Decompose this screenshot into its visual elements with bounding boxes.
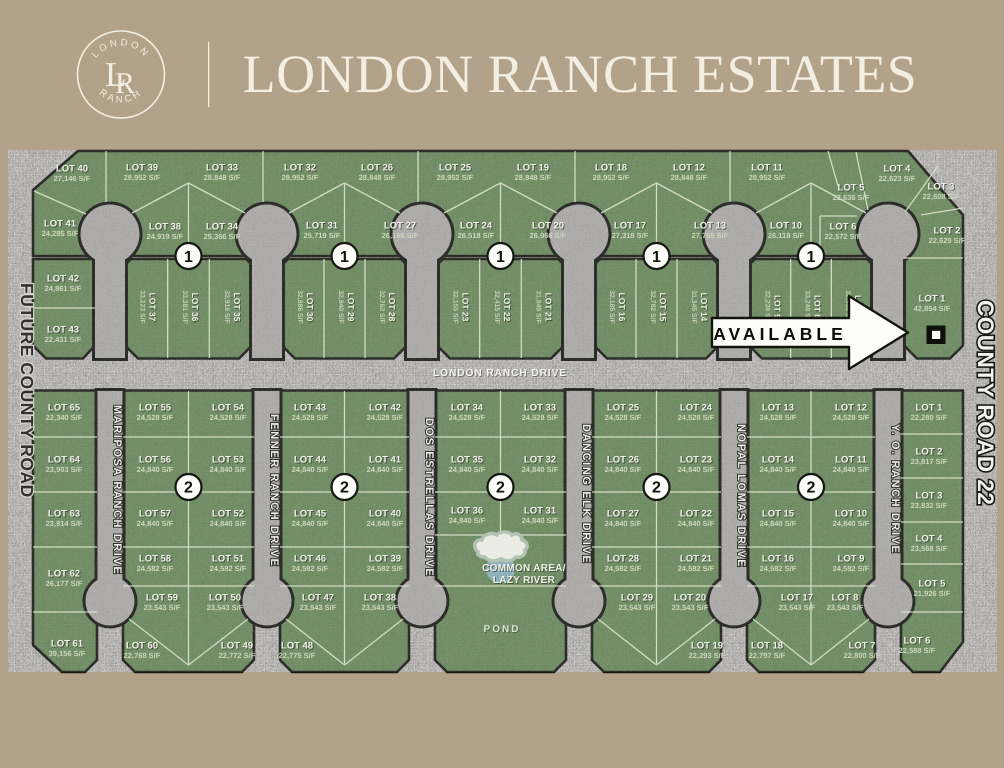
- svg-text:LOT 25: LOT 25: [607, 403, 640, 414]
- svg-text:32,840 S/F: 32,840 S/F: [337, 290, 344, 323]
- svg-text:LOT 11: LOT 11: [835, 455, 867, 466]
- svg-text:LOT 5: LOT 5: [838, 183, 866, 194]
- svg-text:22,800 S/F: 22,800 S/F: [844, 651, 881, 660]
- svg-text:23,817 S/F: 23,817 S/F: [911, 457, 948, 466]
- svg-text:LOT 8: LOT 8: [813, 295, 823, 319]
- svg-text:22,768 S/F: 22,768 S/F: [124, 651, 161, 660]
- svg-text:LOT 26: LOT 26: [361, 163, 393, 174]
- svg-text:LOT 65: LOT 65: [48, 403, 81, 414]
- svg-text:24,582 S/F: 24,582 S/F: [137, 564, 174, 573]
- svg-text:24,528 S/F: 24,528 S/F: [522, 413, 559, 422]
- svg-text:22,775 S/F: 22,775 S/F: [279, 651, 316, 660]
- svg-text:LOT 13: LOT 13: [694, 221, 726, 232]
- svg-text:24,840 S/F: 24,840 S/F: [292, 465, 329, 474]
- svg-text:LOT 26: LOT 26: [607, 455, 639, 466]
- svg-text:MARIPOSA RANCH DRIVE: MARIPOSA RANCH DRIVE: [111, 405, 123, 575]
- svg-text:28,848 S/F: 28,848 S/F: [671, 173, 708, 182]
- svg-text:23,543 S/F: 23,543 S/F: [827, 603, 864, 612]
- svg-text:2: 2: [184, 480, 193, 497]
- svg-text:DOS ESTRELLAS DRIVE: DOS ESTRELLAS DRIVE: [423, 418, 435, 577]
- svg-text:23,543 S/F: 23,543 S/F: [207, 603, 244, 612]
- svg-text:24,840 S/F: 24,840 S/F: [760, 519, 797, 528]
- svg-text:23,543 S/F: 23,543 S/F: [672, 603, 709, 612]
- svg-text:LOT 59: LOT 59: [146, 593, 178, 604]
- svg-text:24,840 S/F: 24,840 S/F: [833, 519, 870, 528]
- svg-text:1: 1: [807, 249, 816, 266]
- svg-text:LOT 17: LOT 17: [781, 593, 813, 604]
- svg-text:24,528 S/F: 24,528 S/F: [605, 413, 642, 422]
- svg-text:FENNER RANCH DRIVE: FENNER RANCH DRIVE: [268, 414, 280, 567]
- svg-text:24,840 S/F: 24,840 S/F: [522, 465, 559, 474]
- svg-text:LOT 56: LOT 56: [139, 455, 171, 466]
- svg-text:LOT 54: LOT 54: [212, 403, 245, 414]
- svg-text:LOT 60: LOT 60: [126, 641, 158, 652]
- svg-text:22,608 S/F: 22,608 S/F: [923, 192, 960, 201]
- svg-text:LOT 6: LOT 6: [830, 222, 857, 233]
- svg-text:FUTURE COUNTY ROAD: FUTURE COUNTY ROAD: [17, 283, 37, 498]
- svg-text:LOT 28: LOT 28: [607, 554, 639, 565]
- svg-text:LOT 14: LOT 14: [762, 455, 795, 466]
- svg-text:23,543 S/F: 23,543 S/F: [362, 603, 399, 612]
- svg-text:LOT 53: LOT 53: [212, 455, 244, 466]
- svg-text:28,848 S/F: 28,848 S/F: [359, 173, 396, 182]
- svg-text:31,345 S/F: 31,345 S/F: [690, 290, 697, 323]
- svg-text:24,861 S/F: 24,861 S/F: [45, 284, 82, 293]
- svg-text:LONDON RANCH ESTATES: LONDON RANCH ESTATES: [243, 44, 918, 104]
- svg-text:LOT 30: LOT 30: [305, 293, 315, 322]
- svg-text:28,952 S/F: 28,952 S/F: [124, 173, 161, 182]
- svg-text:31,849 S/F: 31,849 S/F: [535, 290, 542, 323]
- svg-text:25,366 S/F: 25,366 S/F: [204, 232, 241, 241]
- svg-text:1: 1: [652, 249, 661, 266]
- svg-text:LOT 29: LOT 29: [621, 593, 653, 604]
- svg-text:28,848 S/F: 28,848 S/F: [204, 173, 241, 182]
- svg-text:LOT 13: LOT 13: [762, 403, 794, 414]
- svg-text:LOT 6: LOT 6: [904, 636, 931, 647]
- svg-text:27,318 S/F: 27,318 S/F: [612, 231, 649, 240]
- svg-text:28,952 S/F: 28,952 S/F: [437, 173, 474, 182]
- svg-text:LOT 27: LOT 27: [384, 221, 416, 232]
- svg-text:24,528 S/F: 24,528 S/F: [210, 413, 247, 422]
- svg-text:LOT 10: LOT 10: [835, 509, 867, 520]
- svg-text:2: 2: [807, 480, 816, 497]
- svg-text:22,340 S/F: 22,340 S/F: [46, 413, 83, 422]
- svg-text:26,118 S/F: 26,118 S/F: [768, 231, 805, 240]
- svg-text:LOT 21: LOT 21: [680, 554, 713, 565]
- svg-text:LOT 58: LOT 58: [139, 554, 171, 565]
- svg-text:23,543 S/F: 23,543 S/F: [779, 603, 816, 612]
- svg-text:23,903 S/F: 23,903 S/F: [46, 465, 83, 474]
- svg-text:24,840 S/F: 24,840 S/F: [449, 516, 486, 525]
- svg-text:32,886 S/F: 32,886 S/F: [296, 290, 303, 323]
- svg-text:LOT 23: LOT 23: [680, 455, 712, 466]
- svg-text:LOT 12: LOT 12: [835, 403, 867, 414]
- svg-text:LOT 1: LOT 1: [916, 403, 944, 414]
- svg-text:DANCING ELK DRIVE: DANCING ELK DRIVE: [580, 424, 592, 564]
- svg-text:LOT 61: LOT 61: [51, 639, 84, 650]
- svg-text:LOT 17: LOT 17: [614, 221, 646, 232]
- svg-text:24,840 S/F: 24,840 S/F: [137, 465, 174, 474]
- svg-text:POND: POND: [484, 624, 521, 635]
- svg-text:LOT 35: LOT 35: [451, 455, 484, 466]
- svg-text:LOT 31: LOT 31: [524, 506, 557, 517]
- svg-text:32,782 S/F: 32,782 S/F: [649, 290, 656, 323]
- svg-text:2: 2: [496, 480, 505, 497]
- svg-text:LOT 62: LOT 62: [48, 569, 80, 580]
- svg-text:LOT 19: LOT 19: [517, 163, 549, 174]
- svg-text:1: 1: [184, 249, 193, 266]
- svg-text:LOT 39: LOT 39: [369, 554, 401, 565]
- svg-text:1: 1: [496, 249, 505, 266]
- svg-text:26,177 S/F: 26,177 S/F: [46, 579, 83, 588]
- svg-text:LOT 29: LOT 29: [346, 293, 356, 322]
- svg-text:LOT 42: LOT 42: [47, 274, 79, 285]
- svg-text:42,854 S/F: 42,854 S/F: [914, 304, 951, 313]
- svg-text:LOT 40: LOT 40: [369, 509, 401, 520]
- svg-text:LOT 36: LOT 36: [451, 506, 483, 517]
- svg-text:26,966 S/F: 26,966 S/F: [530, 231, 567, 240]
- svg-text:LOT 40: LOT 40: [56, 164, 88, 175]
- svg-text:Y. O. RANCH DRIVE: Y. O. RANCH DRIVE: [889, 424, 901, 555]
- svg-text:LOT 39: LOT 39: [126, 163, 158, 174]
- svg-text:2: 2: [340, 480, 349, 497]
- svg-text:24,840 S/F: 24,840 S/F: [678, 519, 715, 528]
- svg-text:LOT 28: LOT 28: [387, 293, 397, 322]
- svg-text:LOT 50: LOT 50: [209, 593, 241, 604]
- svg-text:LOT 16: LOT 16: [617, 293, 627, 322]
- svg-text:22,431 S/F: 22,431 S/F: [45, 335, 82, 344]
- svg-text:LOT 34: LOT 34: [451, 403, 484, 414]
- svg-text:LOT 9: LOT 9: [773, 295, 783, 319]
- svg-text:R: R: [115, 67, 135, 100]
- svg-text:LOT 64: LOT 64: [48, 455, 81, 466]
- svg-text:LOT 3: LOT 3: [916, 491, 943, 502]
- svg-text:24,582 S/F: 24,582 S/F: [760, 564, 797, 573]
- svg-text:32,762 S/F: 32,762 S/F: [378, 290, 385, 323]
- svg-text:LOT 11: LOT 11: [751, 163, 783, 174]
- svg-text:32,155 S/F: 32,155 S/F: [452, 290, 459, 323]
- svg-text:LOT 3: LOT 3: [928, 182, 955, 193]
- svg-text:24,840 S/F: 24,840 S/F: [605, 519, 642, 528]
- svg-text:22,588 S/F: 22,588 S/F: [899, 646, 936, 655]
- svg-text:NOPAL LOMAS DRIVE: NOPAL LOMAS DRIVE: [735, 424, 747, 568]
- svg-text:LOT 49: LOT 49: [221, 641, 253, 652]
- svg-text:24,919 S/F: 24,919 S/F: [147, 232, 184, 241]
- svg-text:24,528 S/F: 24,528 S/F: [678, 413, 715, 422]
- svg-text:2: 2: [652, 480, 661, 497]
- svg-text:24,840 S/F: 24,840 S/F: [449, 465, 486, 474]
- svg-text:22,280 S/F: 22,280 S/F: [911, 413, 948, 422]
- svg-text:LOT 18: LOT 18: [751, 641, 783, 652]
- svg-text:LOT 20: LOT 20: [674, 593, 706, 604]
- svg-text:AVAILABLE: AVAILABLE: [713, 324, 847, 344]
- svg-text:24,582 S/F: 24,582 S/F: [833, 564, 870, 573]
- svg-text:LOT 38: LOT 38: [149, 222, 181, 233]
- svg-text:24,528 S/F: 24,528 S/F: [367, 413, 404, 422]
- svg-text:COMMON AREA/: COMMON AREA/: [482, 563, 566, 574]
- svg-text:28,952 S/F: 28,952 S/F: [593, 173, 630, 182]
- svg-text:27,765 S/F: 27,765 S/F: [692, 231, 729, 240]
- svg-text:22,293 S/F: 22,293 S/F: [689, 651, 726, 660]
- svg-text:LOT 27: LOT 27: [607, 509, 639, 520]
- svg-text:24,840 S/F: 24,840 S/F: [367, 465, 404, 474]
- svg-text:LOT 7: LOT 7: [849, 641, 876, 652]
- svg-text:24,528 S/F: 24,528 S/F: [449, 413, 486, 422]
- svg-text:LOT 22: LOT 22: [502, 293, 512, 322]
- svg-text:24,582 S/F: 24,582 S/F: [292, 564, 329, 573]
- svg-text:24,528 S/F: 24,528 S/F: [760, 413, 797, 422]
- svg-text:LOT 51: LOT 51: [212, 554, 245, 565]
- svg-text:24,840 S/F: 24,840 S/F: [210, 519, 247, 528]
- svg-text:26,166 S/F: 26,166 S/F: [382, 231, 419, 240]
- svg-text:22,636 S/F: 22,636 S/F: [833, 193, 870, 202]
- svg-text:24,285 S/F: 24,285 S/F: [42, 229, 79, 238]
- svg-text:39,156 S/F: 39,156 S/F: [49, 649, 86, 658]
- svg-text:33,223 S/F: 33,223 S/F: [139, 290, 146, 323]
- svg-text:24,840 S/F: 24,840 S/F: [292, 519, 329, 528]
- svg-text:22,629 S/F: 22,629 S/F: [929, 236, 966, 245]
- svg-text:24,840 S/F: 24,840 S/F: [833, 465, 870, 474]
- svg-text:LOT 4: LOT 4: [884, 164, 912, 175]
- svg-text:27,146 S/F: 27,146 S/F: [54, 174, 91, 183]
- svg-text:25,719 S/F: 25,719 S/F: [304, 231, 341, 240]
- svg-text:1: 1: [340, 249, 349, 266]
- svg-text:LOT 47: LOT 47: [302, 593, 334, 604]
- svg-text:LOT 24: LOT 24: [680, 403, 713, 414]
- svg-text:22,623 S/F: 22,623 S/F: [879, 174, 916, 183]
- svg-text:23,543 S/F: 23,543 S/F: [619, 603, 656, 612]
- svg-text:24,582 S/F: 24,582 S/F: [367, 564, 404, 573]
- svg-text:22,772 S/F: 22,772 S/F: [219, 651, 256, 660]
- svg-text:LOT 20: LOT 20: [532, 221, 564, 232]
- svg-text:24,840 S/F: 24,840 S/F: [760, 465, 797, 474]
- svg-text:22,572 S/F: 22,572 S/F: [825, 232, 862, 241]
- svg-text:LOT 57: LOT 57: [139, 509, 171, 520]
- svg-text:24,840 S/F: 24,840 S/F: [367, 519, 404, 528]
- svg-text:LOT 10: LOT 10: [770, 221, 802, 232]
- svg-text:23,543 S/F: 23,543 S/F: [300, 603, 337, 612]
- svg-text:24,840 S/F: 24,840 S/F: [605, 465, 642, 474]
- svg-text:23,914 S/F: 23,914 S/F: [46, 519, 83, 528]
- svg-text:23,832 S/F: 23,832 S/F: [911, 501, 948, 510]
- svg-text:LOT 2: LOT 2: [934, 226, 961, 237]
- svg-text:LOT 19: LOT 19: [691, 641, 723, 652]
- svg-text:22,797 S/F: 22,797 S/F: [749, 651, 786, 660]
- svg-text:28,952 S/F: 28,952 S/F: [749, 173, 786, 182]
- svg-text:LOT 41: LOT 41: [369, 455, 402, 466]
- svg-text:LOT 38: LOT 38: [364, 593, 396, 604]
- svg-text:LOT 33: LOT 33: [206, 163, 238, 174]
- svg-text:21,926 S/F: 21,926 S/F: [914, 589, 951, 598]
- svg-text:24,840 S/F: 24,840 S/F: [522, 516, 559, 525]
- svg-text:LONDON RANCH DRIVE: LONDON RANCH DRIVE: [433, 368, 567, 379]
- svg-text:LOT 55: LOT 55: [139, 403, 172, 414]
- svg-text:COUNTY ROAD 22: COUNTY ROAD 22: [973, 300, 998, 505]
- svg-text:32,916 S/F: 32,916 S/F: [223, 290, 230, 323]
- svg-text:LOT 21: LOT 21: [544, 293, 554, 322]
- svg-text:LOT 12: LOT 12: [673, 163, 705, 174]
- svg-text:LOT 34: LOT 34: [206, 222, 239, 233]
- svg-text:32,415 S/F: 32,415 S/F: [493, 290, 500, 323]
- svg-text:32,185 S/F: 32,185 S/F: [608, 290, 615, 323]
- svg-text:LOT 63: LOT 63: [48, 509, 80, 520]
- svg-text:LOT 32: LOT 32: [524, 455, 556, 466]
- svg-text:24,840 S/F: 24,840 S/F: [210, 465, 247, 474]
- svg-text:LOT 42: LOT 42: [369, 403, 401, 414]
- svg-text:LOT 9: LOT 9: [838, 554, 865, 565]
- svg-text:24,582 S/F: 24,582 S/F: [605, 564, 642, 573]
- svg-text:LOT 1: LOT 1: [919, 294, 947, 305]
- svg-text:LOT 18: LOT 18: [595, 163, 627, 174]
- svg-text:LOT 24: LOT 24: [460, 221, 493, 232]
- svg-text:LOT 16: LOT 16: [762, 554, 794, 565]
- svg-text:LOT 4: LOT 4: [916, 534, 944, 545]
- svg-text:24,528 S/F: 24,528 S/F: [137, 413, 174, 422]
- svg-text:24,582 S/F: 24,582 S/F: [210, 564, 247, 573]
- svg-text:LOT 15: LOT 15: [762, 509, 795, 520]
- svg-text:24,528 S/F: 24,528 S/F: [833, 413, 870, 422]
- svg-text:LAZY RIVER: LAZY RIVER: [493, 575, 556, 586]
- svg-text:LOT 41: LOT 41: [44, 219, 77, 230]
- svg-text:24,528 S/F: 24,528 S/F: [292, 413, 329, 422]
- svg-text:LOT 8: LOT 8: [832, 593, 859, 604]
- svg-text:LOT 52: LOT 52: [212, 509, 244, 520]
- svg-text:LOT 5: LOT 5: [919, 579, 947, 590]
- svg-text:23,543 S/F: 23,543 S/F: [144, 603, 181, 612]
- svg-text:33,381 S/F: 33,381 S/F: [181, 290, 188, 323]
- svg-text:LOT 37: LOT 37: [148, 293, 158, 322]
- svg-text:LOT 31: LOT 31: [306, 221, 339, 232]
- svg-text:LOT 46: LOT 46: [294, 554, 326, 565]
- svg-text:LOT 14: LOT 14: [699, 293, 709, 322]
- svg-text:LOT 43: LOT 43: [294, 403, 326, 414]
- svg-text:LOT 22: LOT 22: [680, 509, 712, 520]
- svg-text:LOT 45: LOT 45: [294, 509, 327, 520]
- svg-text:28,952 S/F: 28,952 S/F: [282, 173, 319, 182]
- svg-text:LOT 32: LOT 32: [284, 163, 316, 174]
- svg-text:LOT 43: LOT 43: [47, 325, 79, 336]
- svg-text:LOT 15: LOT 15: [658, 293, 668, 322]
- svg-text:24,840 S/F: 24,840 S/F: [678, 465, 715, 474]
- svg-text:LOT 35: LOT 35: [232, 293, 242, 322]
- svg-text:24,582 S/F: 24,582 S/F: [678, 564, 715, 573]
- svg-text:24,840 S/F: 24,840 S/F: [137, 519, 174, 528]
- svg-text:26,518 S/F: 26,518 S/F: [458, 231, 495, 240]
- svg-text:28,848 S/F: 28,848 S/F: [515, 173, 552, 182]
- svg-text:LOT 36: LOT 36: [190, 293, 200, 322]
- svg-text:LOT 44: LOT 44: [294, 455, 327, 466]
- svg-text:LOT 25: LOT 25: [439, 163, 472, 174]
- svg-text:LOT 23: LOT 23: [461, 293, 471, 322]
- svg-text:LOT 2: LOT 2: [916, 447, 943, 458]
- svg-text:LOT 48: LOT 48: [281, 641, 313, 652]
- svg-text:23,568 S/F: 23,568 S/F: [911, 544, 948, 553]
- svg-text:LOT 33: LOT 33: [524, 403, 556, 414]
